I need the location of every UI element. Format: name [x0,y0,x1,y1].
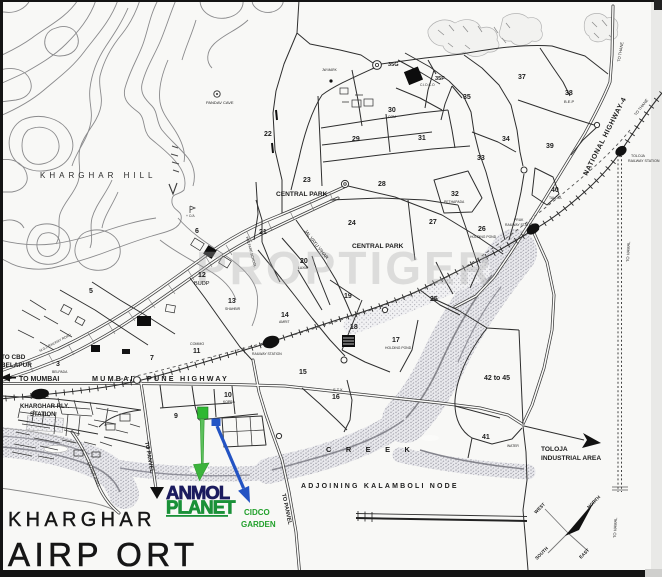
svg-text:STATION: STATION [30,412,55,418]
svg-text:26: 26 [478,226,486,233]
svg-text:CENTRAL PARK: CENTRAL PARK [276,191,328,198]
svg-text:21: 21 [259,229,267,236]
svg-text:37: 37 [518,74,526,81]
svg-text:14: 14 [281,312,289,319]
svg-text:17: 17 [392,337,400,344]
svg-text:13: 13 [228,298,236,305]
svg-text:KHARGHAR HILL: KHARGHAR HILL [40,171,156,180]
svg-text:SHAHBIR: SHAHBIR [225,307,241,311]
svg-text:KHARGHAR RLY.: KHARGHAR RLY. [20,404,69,410]
svg-text:ADJOINING KALAMBOLI NODE: ADJOINING KALAMBOLI NODE [301,483,459,490]
svg-text:25: 25 [430,296,438,303]
svg-text:CIDCO: CIDCO [244,508,270,517]
svg-text:30: 30 [388,107,396,114]
svg-text:TO MUMBAI: TO MUMBAI [19,376,59,383]
svg-text:COMMO: COMMO [190,342,204,346]
svg-text:PANDAV CAVE: PANDAV CAVE [206,100,234,105]
svg-text:42 to 45: 42 to 45 [484,375,510,382]
svg-text:23: 23 [303,177,311,184]
svg-text:HOLDING POND: HOLDING POND [385,346,412,350]
svg-text:BELPADA: BELPADA [52,370,68,374]
svg-text:5: 5 [89,288,93,295]
svg-text:BUDP: BUDP [194,281,210,287]
svg-text:19: 19 [344,293,352,300]
svg-text:12: 12 [198,272,206,279]
svg-text:AMRIT: AMRIT [279,320,290,324]
svg-text:22: 22 [264,131,272,138]
svg-text:32: 32 [451,191,459,198]
svg-text:16: 16 [332,394,340,401]
svg-text:PRUK: PRUK [514,218,524,222]
svg-text:PUNE HIGHWAY: PUNE HIGHWAY [147,374,229,383]
svg-text:40: 40 [551,187,559,194]
svg-text:HOLDING POND: HOLDING POND [470,235,497,239]
svg-text:9: 9 [174,413,178,420]
svg-text:B.E.P: B.E.P [564,99,575,104]
svg-text:RAILWAY STATION: RAILWAY STATION [252,352,282,356]
svg-text:PROPTIGER: PROPTIGER [196,242,494,294]
svg-text:3: 3 [56,361,60,368]
svg-text:AIRP ORT: AIRP ORT [8,536,199,573]
svg-text:PETHAPADA: PETHAPADA [444,200,465,204]
svg-text:KHARGHAR: KHARGHAR [8,509,156,531]
svg-text:KOPRA: KOPRA [223,400,236,404]
svg-text:18: 18 [350,324,358,331]
svg-text:TOLOJA: TOLOJA [631,154,646,158]
svg-text:PLANET: PLANET [166,497,236,518]
svg-text:38: 38 [565,90,573,97]
svg-text:10: 10 [224,392,232,399]
svg-text:39: 39 [546,143,554,150]
svg-text:COM: COM [388,115,396,119]
svg-text:TOLOJA: TOLOJA [541,446,568,453]
svg-text:20: 20 [300,258,308,265]
svg-text:WATER: WATER [507,444,519,448]
svg-text:CENTRAL PARK: CENTRAL PARK [352,243,404,250]
svg-text:+ C/A: + C/A [186,214,195,218]
svg-text:S.T.X: S.T.X [333,387,343,392]
svg-text:7: 7 [150,355,154,362]
svg-text:C.I.D.C.O: C.I.D.C.O [420,83,435,87]
svg-text:35: 35 [463,94,471,101]
svg-text:CREEK: CREEK [326,445,424,454]
svg-text:34: 34 [502,136,510,143]
svg-text:INDUSTRIAL AREA: INDUSTRIAL AREA [541,455,601,462]
svg-text:JW MARK: JW MARK [322,68,338,72]
svg-text:11: 11 [193,348,201,355]
svg-text:33: 33 [477,155,485,162]
svg-text:RAILWAY STATION: RAILWAY STATION [505,223,535,227]
svg-text:31: 31 [418,135,426,142]
svg-text:29: 29 [352,136,360,143]
svg-text:35F: 35F [435,76,445,82]
svg-text:TALOJA: TALOJA [549,196,562,200]
svg-text:27: 27 [429,219,437,226]
svg-text:28: 28 [378,181,386,188]
svg-text:24: 24 [348,220,356,227]
svg-text:41: 41 [482,434,490,441]
svg-text:BELAPUR: BELAPUR [1,362,32,369]
svg-text:15: 15 [299,369,307,376]
svg-text:LAXMI: LAXMI [298,266,308,270]
svg-text:RAILWAY STATION: RAILWAY STATION [628,159,660,163]
svg-text:35G: 35G [388,62,399,68]
svg-text:6: 6 [195,228,199,235]
svg-text:GARDEN: GARDEN [241,520,276,529]
svg-text:MUMBAI: MUMBAI [92,374,135,383]
svg-text:TO CBD: TO CBD [1,354,26,361]
